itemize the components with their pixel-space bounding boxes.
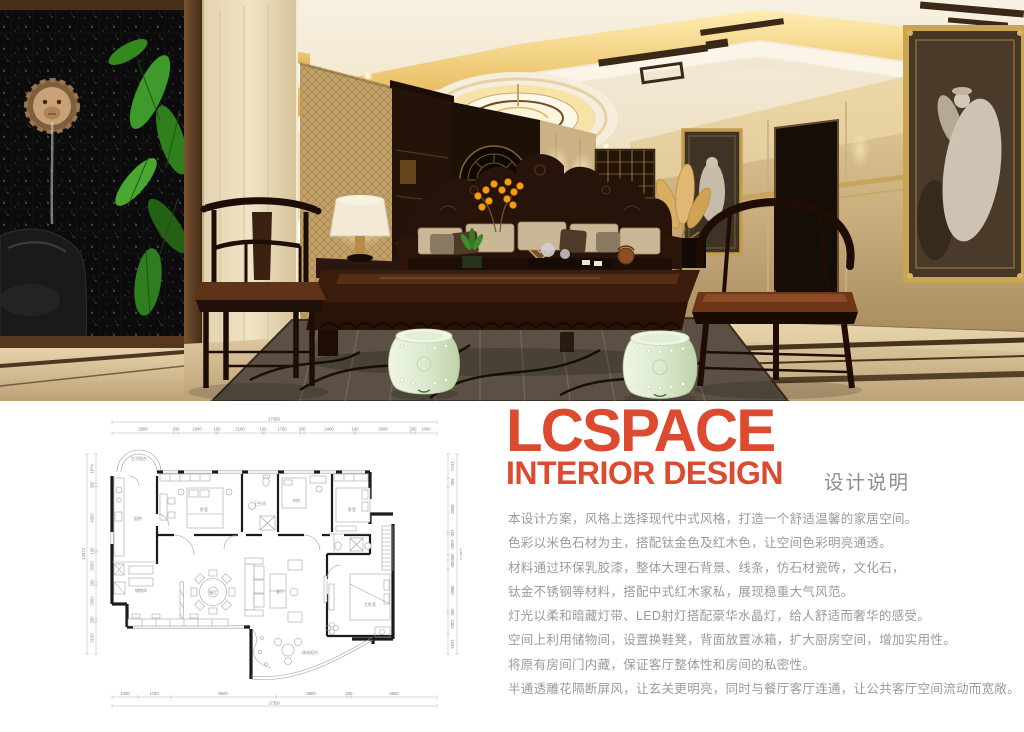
section-title: 设计说明 [824, 466, 910, 495]
svg-text:1304: 1304 [450, 619, 455, 629]
svg-text:主卧室: 主卧室 [364, 601, 376, 607]
entry-screen [180, 582, 184, 620]
svg-text:2000: 2000 [90, 561, 95, 571]
svg-text:1700: 1700 [277, 427, 287, 432]
svg-text:100: 100 [90, 547, 95, 555]
svg-text:13974: 13974 [82, 548, 86, 560]
svg-text:200: 200 [90, 481, 95, 489]
svg-text:1974: 1974 [90, 464, 95, 474]
svg-text:100: 100 [450, 530, 455, 538]
svg-text:1800: 1800 [192, 427, 202, 432]
design-description-section: LCSPACE INTERIOR DESIGN 设计说明 本设计方案，风格上选择… [506, 404, 1022, 724]
svg-text:3800: 3800 [306, 691, 316, 696]
kitchen-fixtures [114, 478, 153, 594]
svg-text:2300: 2300 [90, 596, 95, 606]
svg-text:卫生间: 卫生间 [254, 500, 266, 506]
svg-text:1294: 1294 [450, 639, 455, 649]
note-line: 半通透雕花隔断屏风，让玄关更明亮，同时与餐厅客厅连通，让公共客厅空间流动而宽敞。 [508, 677, 1020, 701]
note-line: 灯光以柔和暗藏灯带、LED射灯搭配豪华水晶灯，给人舒适而奢华的感受。 [508, 604, 1020, 628]
svg-text:200: 200 [450, 609, 455, 617]
svg-text:1400: 1400 [450, 539, 455, 549]
svg-text:卧室: 卧室 [200, 506, 208, 512]
dimension-lines [85, 420, 459, 708]
svg-text:5600: 5600 [218, 691, 228, 696]
sideboard-row [128, 614, 228, 626]
svg-text:2100: 2100 [235, 427, 245, 432]
svg-text:2950: 2950 [138, 427, 148, 432]
svg-text:1574: 1574 [450, 461, 455, 471]
svg-text:2800: 2800 [450, 585, 455, 595]
note-line: 色彩以米色石材为主，搭配钛金色及红木色，让空间色彩明亮通透。 [508, 531, 1020, 555]
bedroom2-furniture [334, 474, 370, 531]
svg-text:17350: 17350 [268, 701, 280, 706]
svg-text:3000: 3000 [450, 504, 455, 514]
svg-text:600: 600 [450, 561, 455, 569]
window-frame-top [0, 0, 188, 10]
window-frame-side [184, 0, 202, 401]
water-feature-wall [0, 0, 202, 401]
brand-title: LCSPACE [506, 404, 1022, 458]
svg-text:厨房: 厨房 [134, 515, 142, 521]
living-set [245, 558, 327, 622]
svg-text:200: 200 [173, 427, 181, 432]
artwork-large [906, 28, 1024, 280]
floor-plan: 17350 2950 200 1800 100 2100 100 1700 20… [82, 413, 462, 717]
svg-text:储物间: 储物间 [135, 587, 147, 593]
svg-text:2100: 2100 [90, 633, 95, 643]
svg-text:卧室: 卧室 [348, 506, 356, 512]
ceramic-stool-left [389, 329, 460, 400]
master-bath-fixtures [335, 538, 371, 551]
design-notes: 本设计方案，风格上选择现代中式风格，打造一个舒适温馨的家居空间。 色彩以米色石材… [508, 507, 1020, 701]
svg-text:600: 600 [450, 479, 455, 487]
svg-text:200: 200 [410, 427, 418, 432]
svg-text:2400: 2400 [324, 427, 334, 432]
svg-text:4600: 4600 [389, 691, 399, 696]
brand-tagline: INTERIOR DESIGN [506, 458, 1022, 488]
window-sill [0, 336, 188, 348]
svg-text:200: 200 [346, 691, 354, 696]
presentation-page: 17350 2950 200 1800 100 2100 100 1700 20… [0, 0, 1024, 732]
svg-text:餐厅: 餐厅 [209, 589, 217, 595]
plan-furniture [114, 474, 393, 626]
note-line: 本设计方案，风格上选择现代中式风格，打造一个舒适温馨的家居空间。 [508, 507, 1020, 531]
note-line: 钛金不锈钢等材料，搭配中式红木家私，展现稳重大气风范。 [508, 580, 1020, 604]
svg-text:4300: 4300 [90, 513, 95, 523]
water-stream [52, 122, 53, 224]
svg-text:13974: 13974 [459, 548, 462, 560]
ceramic-stool-right [623, 331, 697, 401]
svg-text:200: 200 [90, 579, 95, 587]
svg-text:2600: 2600 [378, 427, 388, 432]
note-line: 将原有房间门内藏，保证客厅整体性和房间的私密性。 [508, 653, 1020, 677]
svg-text:书房: 书房 [292, 497, 300, 503]
note-line: 材料通过环保乳胶漆，整体大理石背景、线条，仿石材瓷砖，文化石， [508, 556, 1020, 580]
ac-ledge [382, 526, 393, 570]
svg-text:生活阳台: 生活阳台 [131, 455, 147, 461]
study-furniture [282, 476, 326, 508]
floor-plan-drawing: 17350 2950 200 1800 100 2100 100 1700 20… [82, 413, 462, 717]
note-line: 空间上利用储物间，设置换鞋凳，背面放置冰箱，扩大厨房空间，增加实用性。 [508, 628, 1020, 652]
hero-render-photo [0, 0, 1024, 401]
svg-text:200: 200 [90, 616, 95, 624]
bedroom1-furniture [160, 474, 232, 528]
marble-column [202, 0, 298, 374]
svg-text:100: 100 [214, 427, 222, 432]
door-arcs [129, 476, 341, 579]
svg-text:200: 200 [299, 427, 307, 432]
svg-text:1750: 1750 [149, 691, 159, 696]
hero-illustration [0, 0, 1024, 401]
svg-text:1000: 1000 [421, 427, 431, 432]
master-bed [329, 574, 390, 620]
svg-text:100: 100 [352, 427, 360, 432]
svg-text:休闲阳台: 休闲阳台 [302, 649, 318, 655]
plan-balcony [251, 623, 390, 680]
svg-text:1400: 1400 [120, 691, 130, 696]
svg-text:100: 100 [260, 427, 268, 432]
svg-text:客厅: 客厅 [276, 588, 284, 594]
doorway [775, 120, 838, 302]
svg-text:17350: 17350 [268, 417, 280, 422]
rocks [0, 229, 86, 344]
